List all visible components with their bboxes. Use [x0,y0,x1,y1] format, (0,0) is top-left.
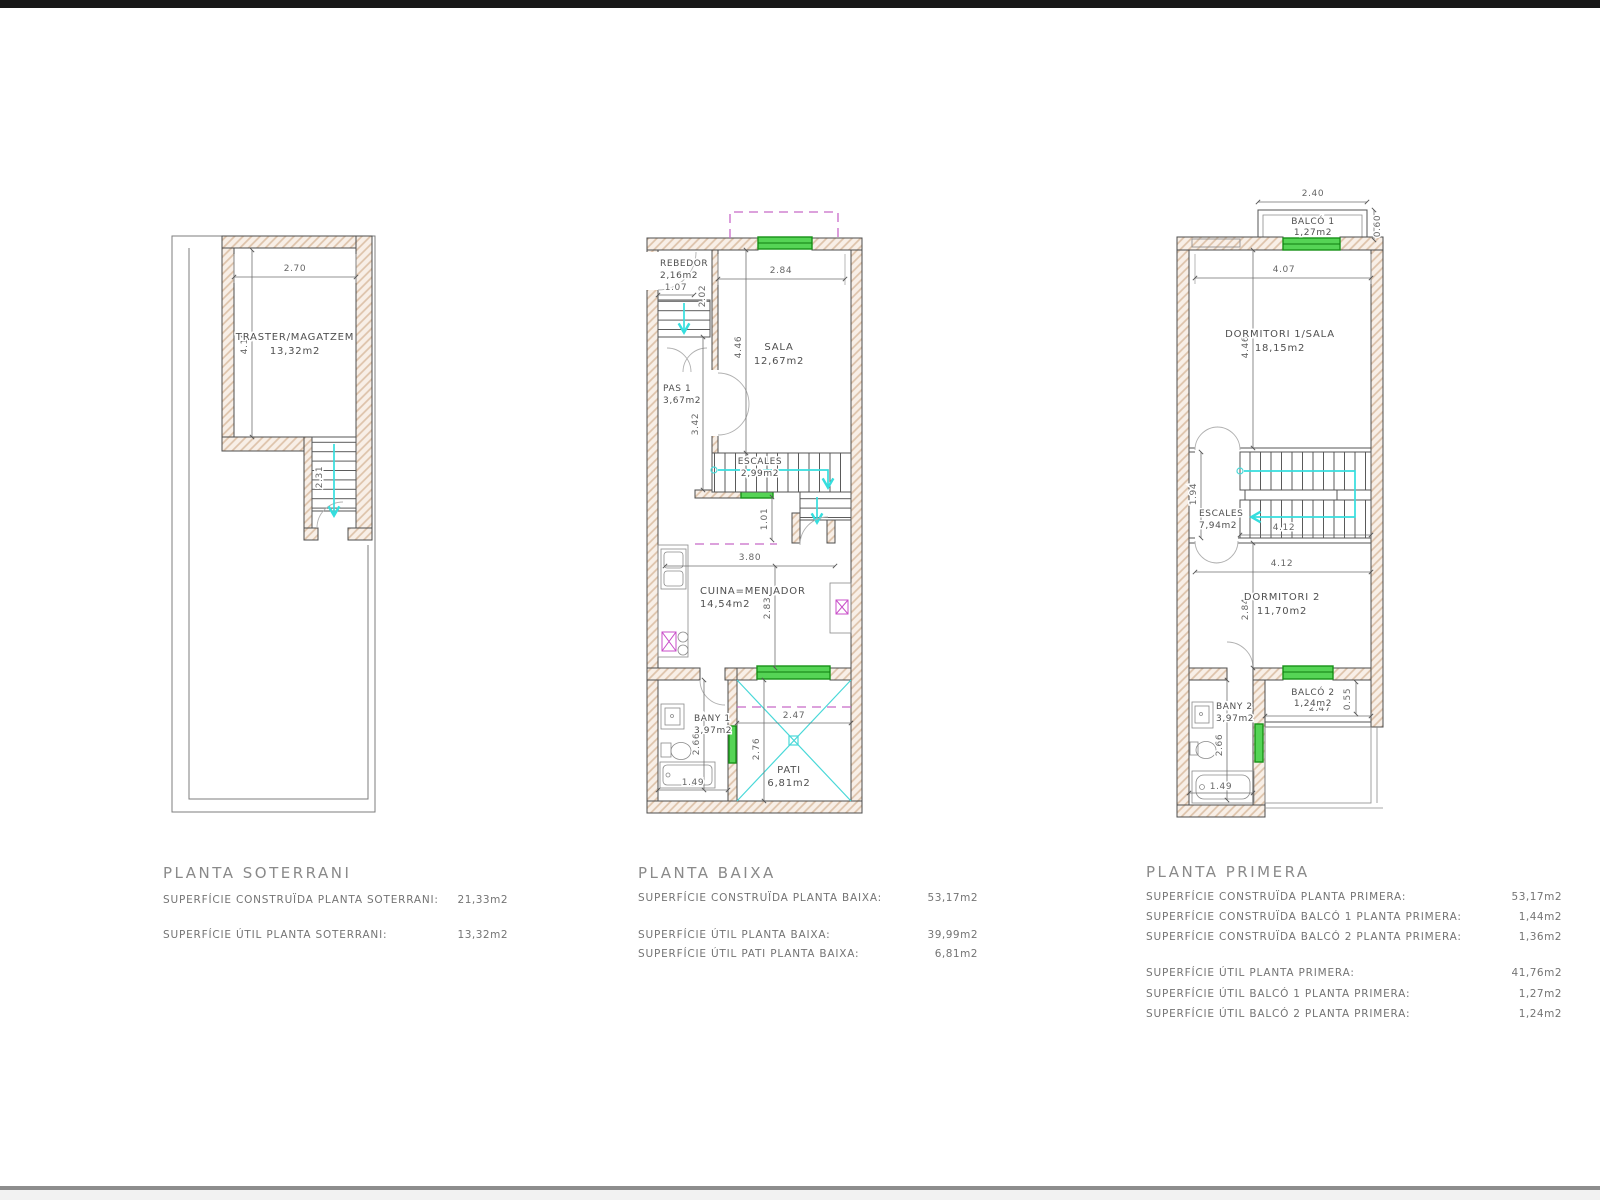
dim-label: 2.84 [770,266,792,276]
dim-label: 0.55 [1343,688,1353,710]
dim-label: 2.47 [783,711,805,721]
room-label-dorm2: DORMITORI 2 [1244,592,1320,603]
dim-label: 0.60 [1373,215,1383,237]
floor-plan-sheet: 2.70 4.19 2.31 TRASTER/MAGATZEM 13,32m2 [0,0,1600,1200]
room-label-pati: PATI [777,765,801,776]
room-label-balco2: BALCÓ 2 [1291,686,1335,698]
room-label-escales: ESCALES [1199,509,1243,519]
summary-soterrani: PLANTA SOTERRANI SUPERFÍCIE CONSTRUÏDA P… [163,864,508,941]
room-area-pati: 6,81m2 [767,778,810,789]
plan-baixa: 1.07 2.02 2.84 4.46 3.42 1.01 3.80 2.83 … [646,212,862,813]
room-area-dorm2: 11,70m2 [1257,606,1307,617]
plan-title-soterrani: PLANTA SOTERRANI [163,864,351,882]
page-bottom-shadow [0,1190,1600,1200]
summary-row-value: 39,99m2 [928,929,978,941]
room-label-bany1: BANY 1 [694,714,731,724]
dim-label: 2.76 [752,738,762,760]
summary-row-label: SUPERFÍCIE ÚTIL BALCÓ 1 PLANTA PRIMERA: [1146,987,1410,1000]
room-label-rebedor: REBEDOR [660,259,708,269]
summary-row-label: SUPERFÍCIE ÚTIL PLANTA BAIXA: [638,928,831,941]
summary-row-value: 21,33m2 [458,894,508,906]
summary-row-label: SUPERFÍCIE ÚTIL BALCÓ 2 PLANTA PRIMERA: [1146,1007,1410,1020]
summary-row-value: 53,17m2 [1512,891,1562,903]
dim-label: 1.49 [682,778,704,788]
summary-row-label: SUPERFÍCIE CONSTRUÏDA BALCÓ 2 PLANTA PRI… [1146,930,1462,943]
summary-baixa: PLANTA BAIXA SUPERFÍCIE CONSTRUÏDA PLANT… [638,864,978,960]
summary-row-value: 41,76m2 [1512,967,1562,979]
dim-label: 1.49 [1210,782,1232,792]
summary-row-value: 53,17m2 [928,892,978,904]
room-area-escales: 2,99m2 [741,469,779,479]
room-label-traster: TRASTER/MAGATZEM [235,332,354,343]
room-area-traster: 13,32m2 [270,346,320,357]
plan-soterrani: 2.70 4.19 2.31 TRASTER/MAGATZEM 13,32m2 [172,236,375,812]
room-area-bany2: 3,97m2 [1216,714,1254,724]
summary-row-label: SUPERFÍCIE CONSTRUÏDA PLANTA PRIMERA: [1146,890,1406,903]
summary-row-label: SUPERFÍCIE CONSTRUÏDA BALCÓ 1 PLANTA PRI… [1146,910,1462,923]
summary-row-value: 1,27m2 [1519,988,1562,1000]
window-bany2 [1255,724,1263,762]
window-top-edge [0,0,1600,8]
dim-label: 4.07 [1273,265,1295,275]
dim-label: 2.31 [315,466,325,488]
summary-row-label: SUPERFÍCIE ÚTIL PLANTA SOTERRANI: [163,928,387,941]
room-area-cuina: 14,54m2 [700,599,750,610]
room-area-pas: 3,67m2 [663,396,701,406]
room-area-escales: 7,94m2 [1199,521,1237,531]
page-bottom-edge [0,1186,1600,1190]
room-label-dorm1: DORMITORI 1/SALA [1225,329,1335,340]
summary-row-value: 1,36m2 [1519,931,1562,943]
summary-row-label: SUPERFÍCIE ÚTIL PLANTA PRIMERA: [1146,966,1355,979]
dim-label: 2.66 [1215,734,1225,756]
dim-label: 2.83 [763,597,773,619]
balcony-projection-dashed [730,212,838,238]
room-area-bany1: 3,97m2 [694,726,732,736]
plan-title-primera: PLANTA PRIMERA [1146,863,1310,881]
summary-row-value: 1,44m2 [1519,911,1562,923]
room-area-dorm1: 18,15m2 [1255,343,1305,354]
room-label-sala: SALA [764,342,793,353]
room-area-sala: 12,67m2 [754,356,804,367]
room-label-bany2: BANY 2 [1216,702,1253,712]
dim-label: 3.80 [739,553,761,563]
summary-row-label: SUPERFÍCIE CONSTRUÏDA PLANTA BAIXA: [638,891,882,904]
lower-stair-flight [800,492,851,520]
dim-label: 1.94 [1189,483,1199,505]
summary-row-label: SUPERFÍCIE CONSTRUÏDA PLANTA SOTERRANI: [163,893,439,906]
room-area-balco1: 1,27m2 [1294,228,1332,238]
room-label-pas: PAS 1 [663,384,691,394]
summary-primera: PLANTA PRIMERA SUPERFÍCIE CONSTRUÏDA PLA… [1146,863,1562,1020]
summary-row-value: 1,24m2 [1519,1008,1562,1020]
room-label-escales: ESCALES [738,457,782,467]
dim-label: 4.12 [1273,523,1295,533]
dim-label: 1.07 [665,283,687,293]
floor-plan-drawing: 2.70 4.19 2.31 TRASTER/MAGATZEM 13,32m2 [0,0,1600,1200]
dim-label: 1.01 [760,508,770,530]
room-area-balco2: 1,24m2 [1294,699,1332,709]
dim-label: 4.12 [1271,559,1293,569]
lower-stair-flight [1240,500,1371,538]
room-area-rebedor: 2,16m2 [660,271,698,281]
summary-row-label: SUPERFÍCIE ÚTIL PATI PLANTA BAIXA: [638,947,859,960]
plan-primera: 2.40 0.60 4.07 4.46 1.94 4.12 4.12 2.84 … [1177,189,1383,817]
summary-row-value: 13,32m2 [458,929,508,941]
dim-label: 4.46 [734,336,744,358]
dim-label: 2.02 [698,285,708,307]
room-label-balco1: BALCÓ 1 [1291,215,1335,227]
plan-title-baixa: PLANTA BAIXA [638,864,776,882]
dim-label: 2.40 [1302,189,1324,199]
dim-label: 3.42 [691,413,701,435]
room-label-cuina: CUINA=MENJADOR [700,586,806,597]
dim-label: 2.70 [284,264,306,274]
dim-label: 2.66 [692,733,702,755]
summary-row-value: 6,81m2 [935,948,978,960]
